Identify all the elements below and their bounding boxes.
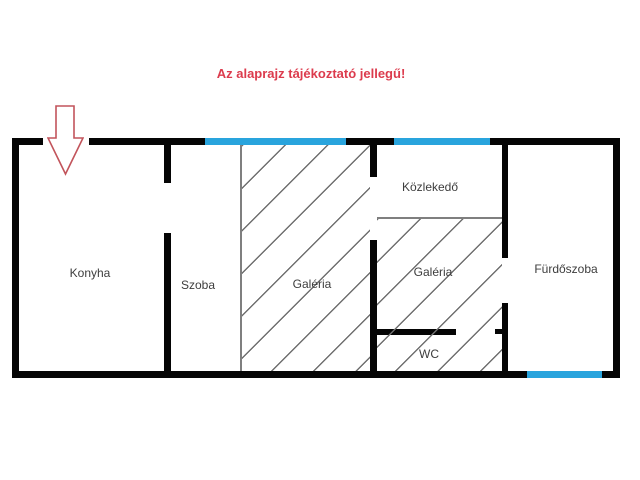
window-top-2 <box>394 138 490 145</box>
wall-konyha-szoba-lower <box>164 233 171 371</box>
wall-furdoszoba-left-upper <box>502 145 508 258</box>
hatch-galeria2 <box>377 219 502 371</box>
room-label-wc: WC <box>419 347 439 361</box>
room-label-galeria2: Galéria <box>414 265 453 279</box>
entrance-arrow-icon <box>47 105 84 176</box>
wall-furdoszoba-left-lower <box>502 303 508 371</box>
disclaimer-text: Az alaprajz tájékoztató jellegű! <box>217 66 406 81</box>
wall-bottom-b <box>602 371 620 378</box>
wall-galeria1-right-lower <box>370 240 377 371</box>
room-label-konyha: Konyha <box>70 266 111 280</box>
room-label-furdoszoba: Fürdőszoba <box>534 262 597 276</box>
wall-top-right <box>490 138 620 145</box>
wall-bottom-a <box>12 371 527 378</box>
window-bottom <box>527 371 602 378</box>
wall-left <box>12 138 19 378</box>
wall-right <box>613 138 620 378</box>
window-top-1 <box>205 138 346 145</box>
hatch-galeria1 <box>242 145 370 371</box>
room-label-galeria1: Galéria <box>293 277 332 291</box>
wall-top-left-b <box>89 138 205 145</box>
room-label-kozlekedo: Közlekedő <box>402 180 458 194</box>
floor-plan-canvas: Az alaprajz tájékoztató jellegű! Konyha … <box>0 0 640 480</box>
wall-top-mid <box>346 138 394 145</box>
room-label-szoba: Szoba <box>181 278 215 292</box>
wall-konyha-szoba-upper <box>164 145 171 183</box>
wall-galeria1-right-upper <box>370 145 377 177</box>
